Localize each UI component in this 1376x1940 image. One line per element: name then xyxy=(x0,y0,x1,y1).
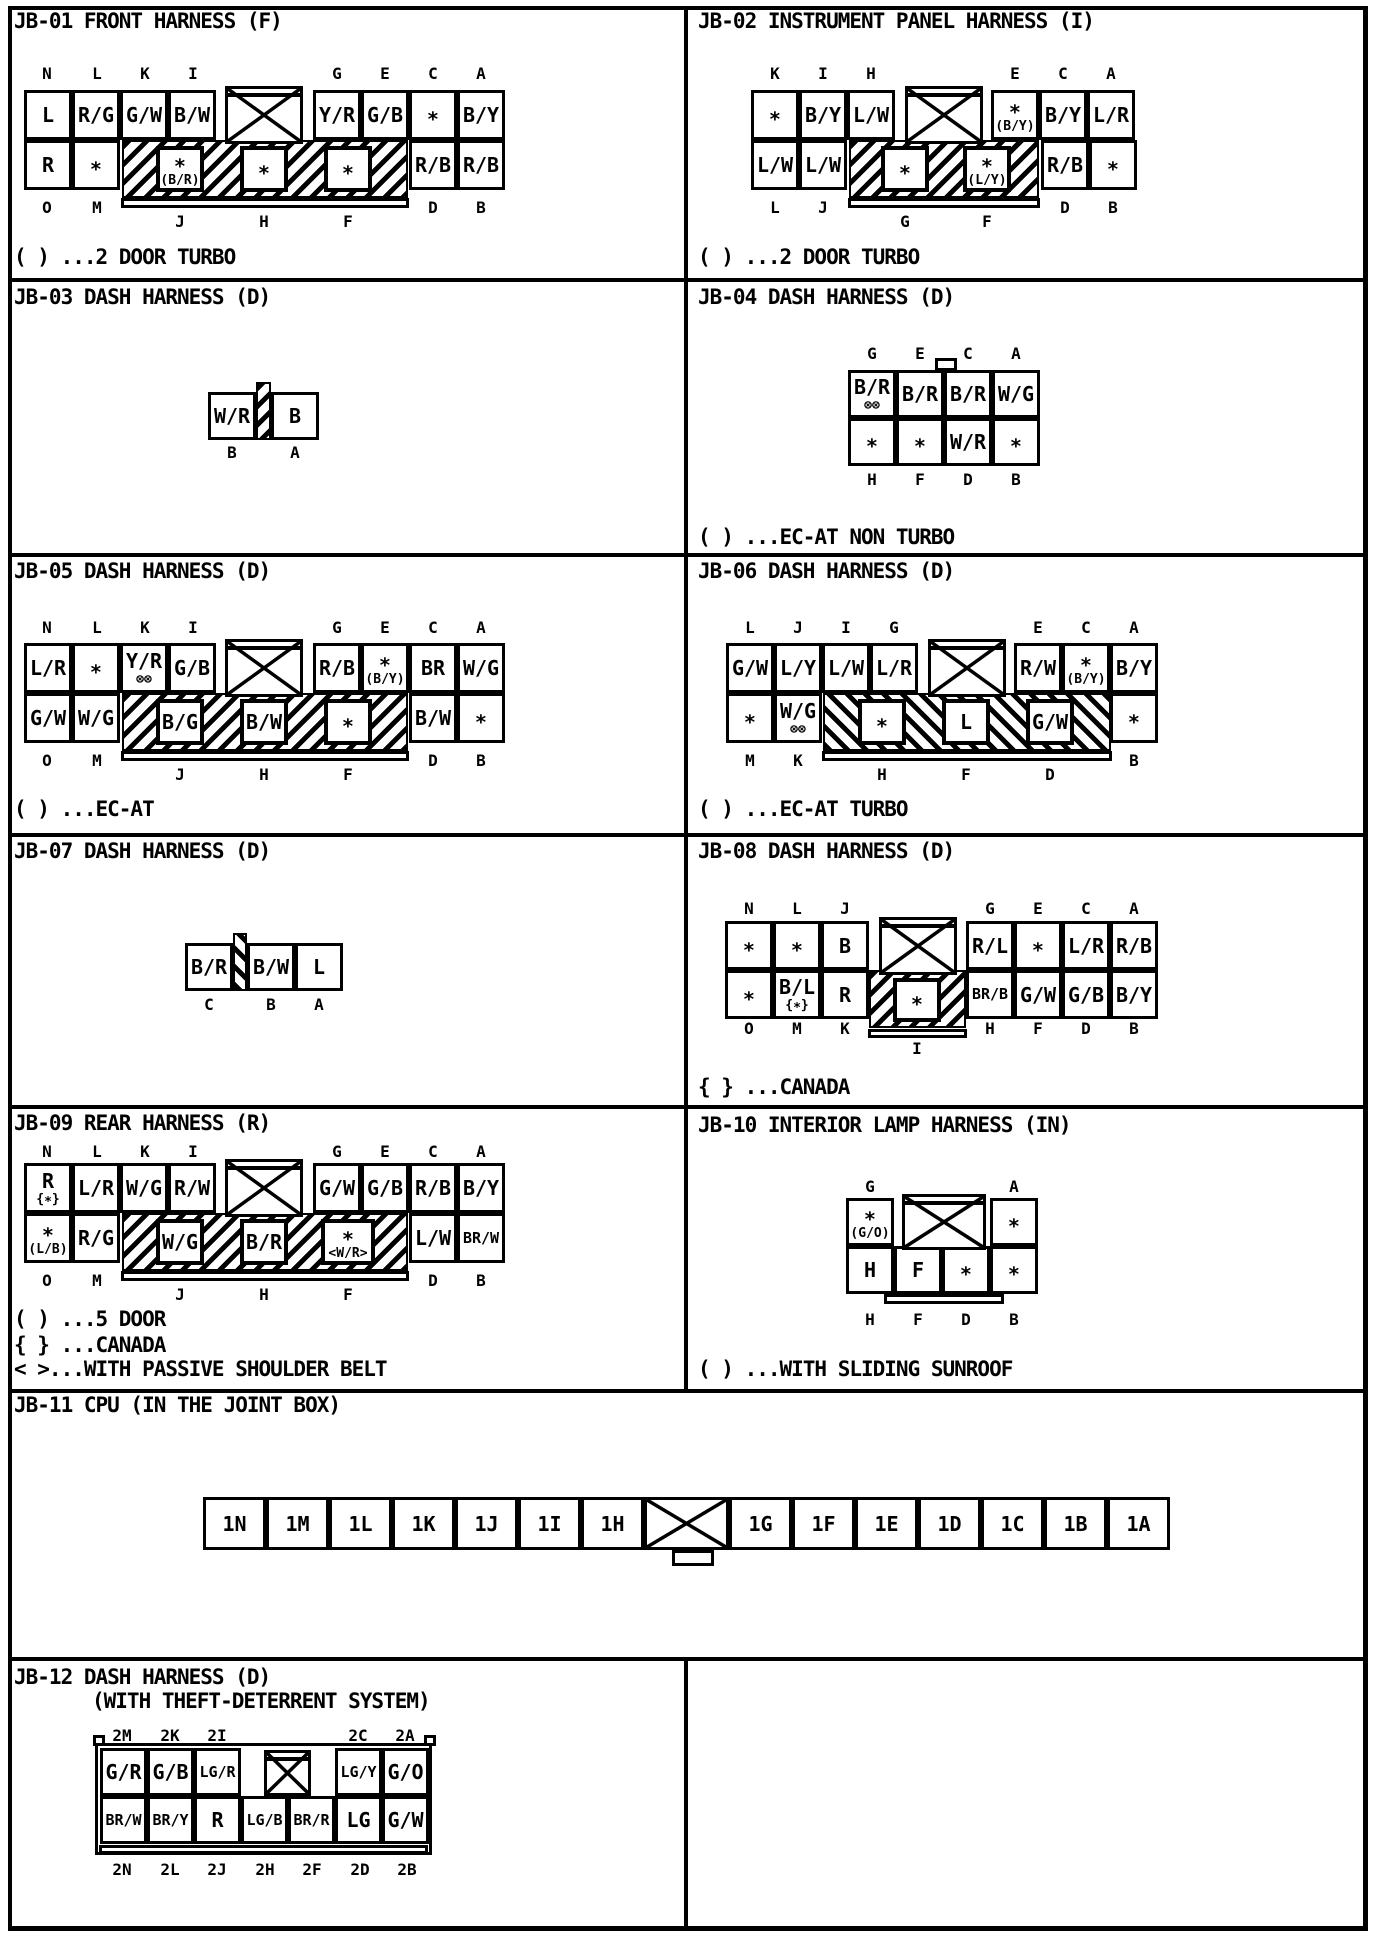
panel-title: JB-12 DASH HARNESS (D) xyxy=(14,1666,270,1689)
cell-wire-color: B/W xyxy=(246,712,282,732)
connector-cell: B/W xyxy=(240,699,288,745)
connector-cell: LG/Y xyxy=(335,1748,382,1796)
connector-base-bar xyxy=(99,1845,428,1854)
panel-jb-12: G/RG/BLG/RLG/YG/OBR/WBR/YRLG/BBR/RLGG/W2… xyxy=(0,0,1376,1940)
junction-box-diagram-page: LR/GG/WB/WY/RG/B∗B/YR∗R/BR/B∗(B/R)∗∗NLKI… xyxy=(0,0,1376,1940)
pin-label: 2A xyxy=(395,1728,414,1744)
crossed-box-topline xyxy=(905,1201,983,1205)
cross-icon xyxy=(647,1500,726,1547)
cell-wire-color: ∗ xyxy=(981,152,993,172)
cell-wire-color: ∗ xyxy=(342,712,354,732)
cell-wire-color: ∗ xyxy=(899,159,911,179)
connector-base-bar xyxy=(848,198,1040,208)
connector-cell: LG xyxy=(335,1796,382,1844)
connector-cell: ∗ xyxy=(893,978,941,1022)
cell-wire-color: ∗ xyxy=(342,159,354,179)
connector-cell: G/W xyxy=(1026,699,1074,745)
pin-label: 2C xyxy=(348,1728,367,1744)
connector-cell: ∗ xyxy=(881,146,929,192)
connector-cell: L xyxy=(942,699,990,745)
connector-base-bar xyxy=(884,1294,1004,1304)
connector-tab xyxy=(672,1550,714,1566)
connector-base-bar xyxy=(822,751,1112,761)
connector-cell: ∗<W/R> xyxy=(321,1219,375,1265)
connector-cell: R xyxy=(194,1796,241,1844)
pin-label: 2N xyxy=(112,1862,131,1878)
connector-tab xyxy=(424,1735,436,1746)
crossed-box-topline xyxy=(931,646,1003,650)
connector-base-bar xyxy=(868,1029,967,1038)
cell-variant-note: (L/Y) xyxy=(967,174,1006,187)
hatch-region xyxy=(256,382,271,440)
connector-cell: ∗ xyxy=(324,699,372,745)
crossed-box xyxy=(225,86,303,144)
cell-wire-color: L xyxy=(960,712,972,732)
pin-label: 2I xyxy=(207,1728,226,1744)
cell-wire-color: G/W xyxy=(387,1810,423,1830)
cell-wire-color: W/G xyxy=(162,1232,198,1252)
cell-wire-color: LG/R xyxy=(199,1765,235,1780)
crossed-box xyxy=(264,1750,311,1796)
cell-wire-color: ∗ xyxy=(174,152,186,172)
cell-wire-color: ∗ xyxy=(342,1225,354,1245)
crossed-box xyxy=(902,1194,986,1250)
cell-wire-color: G/R xyxy=(105,1762,141,1782)
cell-wire-color: LG/B xyxy=(246,1813,282,1828)
crossed-box-topline xyxy=(267,1757,308,1761)
connector-cell: G/O xyxy=(382,1748,429,1796)
crossed-box-topline xyxy=(228,93,300,97)
connector-cell: G/W xyxy=(382,1796,429,1844)
pin-label: 2H xyxy=(255,1862,274,1878)
connector-cell: ∗(L/Y) xyxy=(963,146,1011,192)
connector-cell: BR/Y xyxy=(147,1796,194,1844)
connector-tab xyxy=(935,358,957,371)
pin-label: 2K xyxy=(160,1728,179,1744)
connector-cell: B/G xyxy=(156,699,204,745)
crossed-box xyxy=(225,639,303,697)
crossed-box xyxy=(905,86,983,144)
connector-cell: G/B xyxy=(147,1748,194,1796)
pin-label: 2F xyxy=(302,1862,321,1878)
cell-wire-color: LG/Y xyxy=(340,1765,376,1780)
connector-base-bar xyxy=(121,751,409,761)
connector-cell: ∗(B/R) xyxy=(156,146,204,192)
cell-wire-color: BR/Y xyxy=(152,1813,188,1828)
pin-label: 2D xyxy=(350,1862,369,1878)
connector-cell: BR/W xyxy=(100,1796,147,1844)
crossed-box xyxy=(644,1497,729,1550)
connector-cell: BR/R xyxy=(288,1796,335,1844)
cell-wire-color: ∗ xyxy=(911,990,923,1010)
connector-cell: LG/B xyxy=(241,1796,288,1844)
cell-wire-color: G/O xyxy=(387,1762,423,1782)
connector-cell: ∗ xyxy=(240,146,288,192)
crossed-box-topline xyxy=(908,93,980,97)
cell-wire-color: R xyxy=(211,1810,223,1830)
crossed-box-topline xyxy=(228,1166,300,1170)
cell-wire-color: G/B xyxy=(152,1762,188,1782)
cell-wire-color: B/G xyxy=(162,712,198,732)
crossed-box xyxy=(928,639,1006,697)
cell-wire-color: ∗ xyxy=(876,712,888,732)
connector-tab xyxy=(93,1735,105,1746)
pin-label: 2J xyxy=(207,1862,226,1878)
cell-wire-color: ∗ xyxy=(258,159,270,179)
pin-label: 2L xyxy=(160,1862,179,1878)
connector-base-bar xyxy=(121,198,409,208)
pin-label: 2B xyxy=(397,1862,416,1878)
cell-wire-color: LG xyxy=(346,1810,370,1830)
connector-cell: G/R xyxy=(100,1748,147,1796)
connector-cell: ∗ xyxy=(324,146,372,192)
hatch-region xyxy=(233,933,247,991)
cell-variant-note: (B/R) xyxy=(160,174,199,187)
crossed-box-topline xyxy=(228,646,300,650)
cell-wire-color: B/R xyxy=(246,1232,282,1252)
cell-wire-color: BR/W xyxy=(105,1813,141,1828)
crossed-box xyxy=(225,1159,303,1217)
pin-label: 2M xyxy=(112,1728,131,1744)
connector-cell: ∗ xyxy=(858,699,906,745)
connector-cell: B/R xyxy=(240,1219,288,1265)
crossed-box xyxy=(879,917,957,975)
connector-cell: W/G xyxy=(156,1219,204,1265)
panel-subtitle: (WITH THEFT-DETERRENT SYSTEM) xyxy=(92,1690,430,1713)
connector-cell: LG/R xyxy=(194,1748,241,1796)
crossed-box-topline xyxy=(882,924,954,928)
cell-wire-color: G/W xyxy=(1032,712,1068,732)
cell-wire-color: BR/R xyxy=(293,1813,329,1828)
cell-variant-note: <W/R> xyxy=(328,1247,367,1260)
connector-base-bar xyxy=(121,1271,409,1281)
